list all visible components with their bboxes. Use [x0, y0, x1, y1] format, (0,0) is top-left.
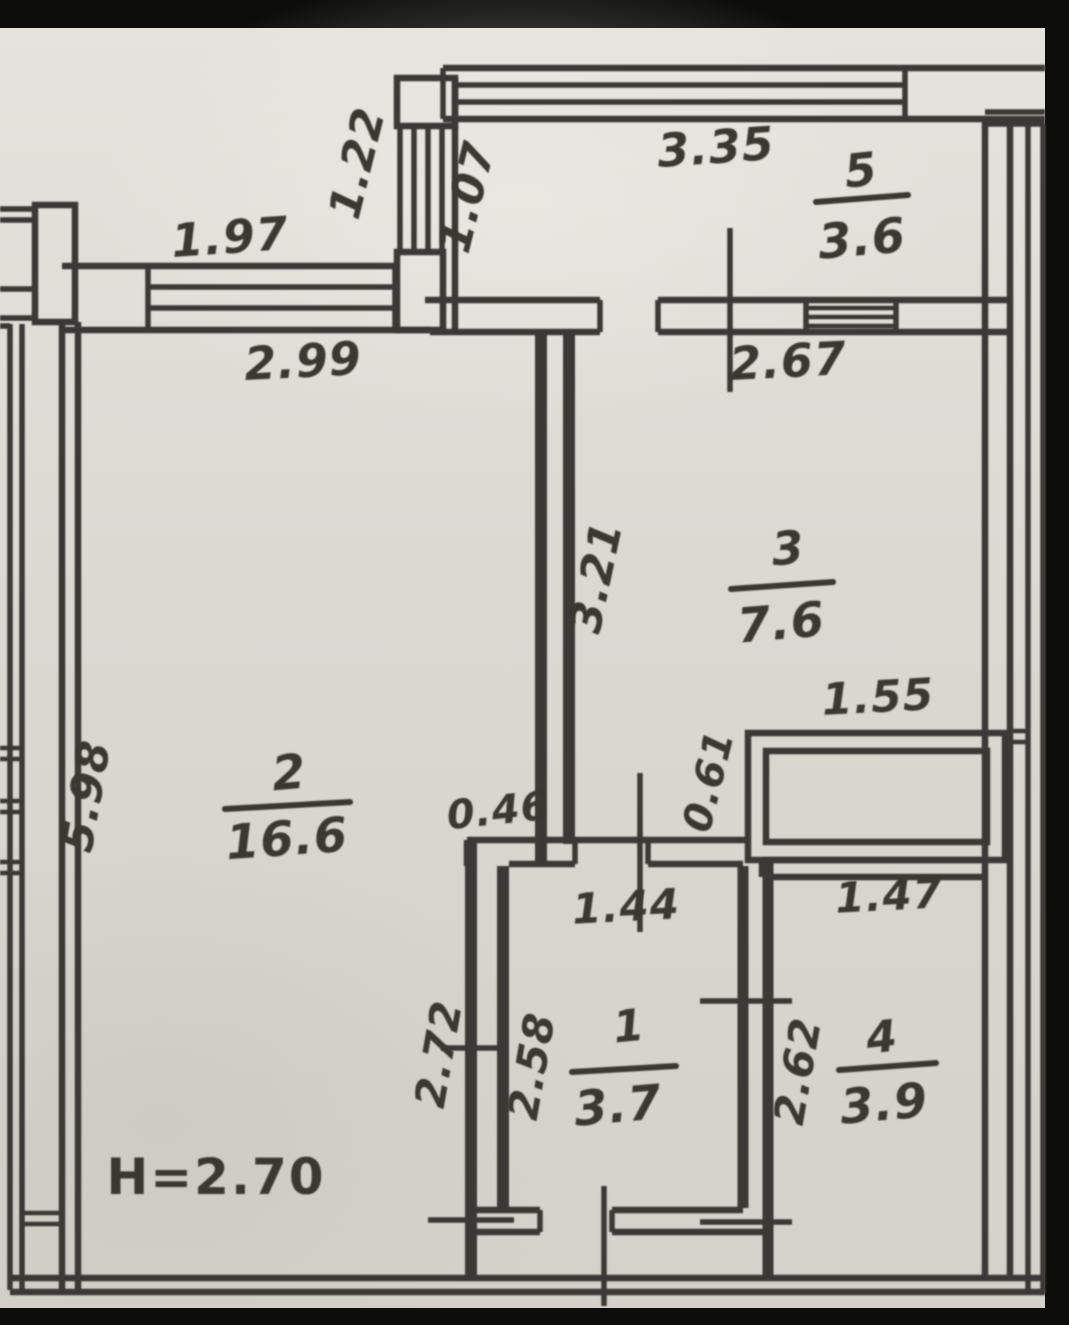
floor-plan-drawing: 1.97 1.22 1.07 3.35 5 3.6 2.99 2.67 3.21… — [0, 0, 1069, 1325]
dimension-label-balcony-width: 3.35 — [656, 116, 777, 178]
ceiling-height-label: H=2.70 — [106, 1148, 325, 1206]
room2-area: 16.6 — [224, 807, 350, 871]
room5-number: 5 — [842, 141, 880, 198]
floor-plan-photo: 1.97 1.22 1.07 3.35 5 3.6 2.99 2.67 3.21… — [0, 0, 1069, 1325]
room4-number: 4 — [863, 1010, 901, 1064]
room1-area: 3.7 — [572, 1074, 665, 1137]
dimension-label-room4-width: 1.47 — [834, 868, 944, 923]
room5-area: 3.6 — [816, 207, 909, 270]
room4-area: 3.9 — [838, 1072, 931, 1135]
dimension-label-top-window: 1.97 — [170, 206, 291, 268]
dimension-label-duct-width: 1.55 — [820, 669, 935, 726]
dimension-label-hall-width: 1.44 — [571, 879, 681, 934]
photo-black-right-border — [1045, 0, 1069, 1325]
dimension-label-room2-top-width: 2.99 — [243, 331, 363, 391]
room3-number: 3 — [769, 520, 807, 577]
dimension-label-room3-top-width: 2.67 — [728, 331, 848, 391]
room1-number: 1 — [611, 999, 648, 1053]
room3-area: 7.6 — [735, 591, 828, 654]
photo-black-bottom-border — [0, 1308, 1069, 1325]
room2-number: 2 — [270, 744, 309, 803]
